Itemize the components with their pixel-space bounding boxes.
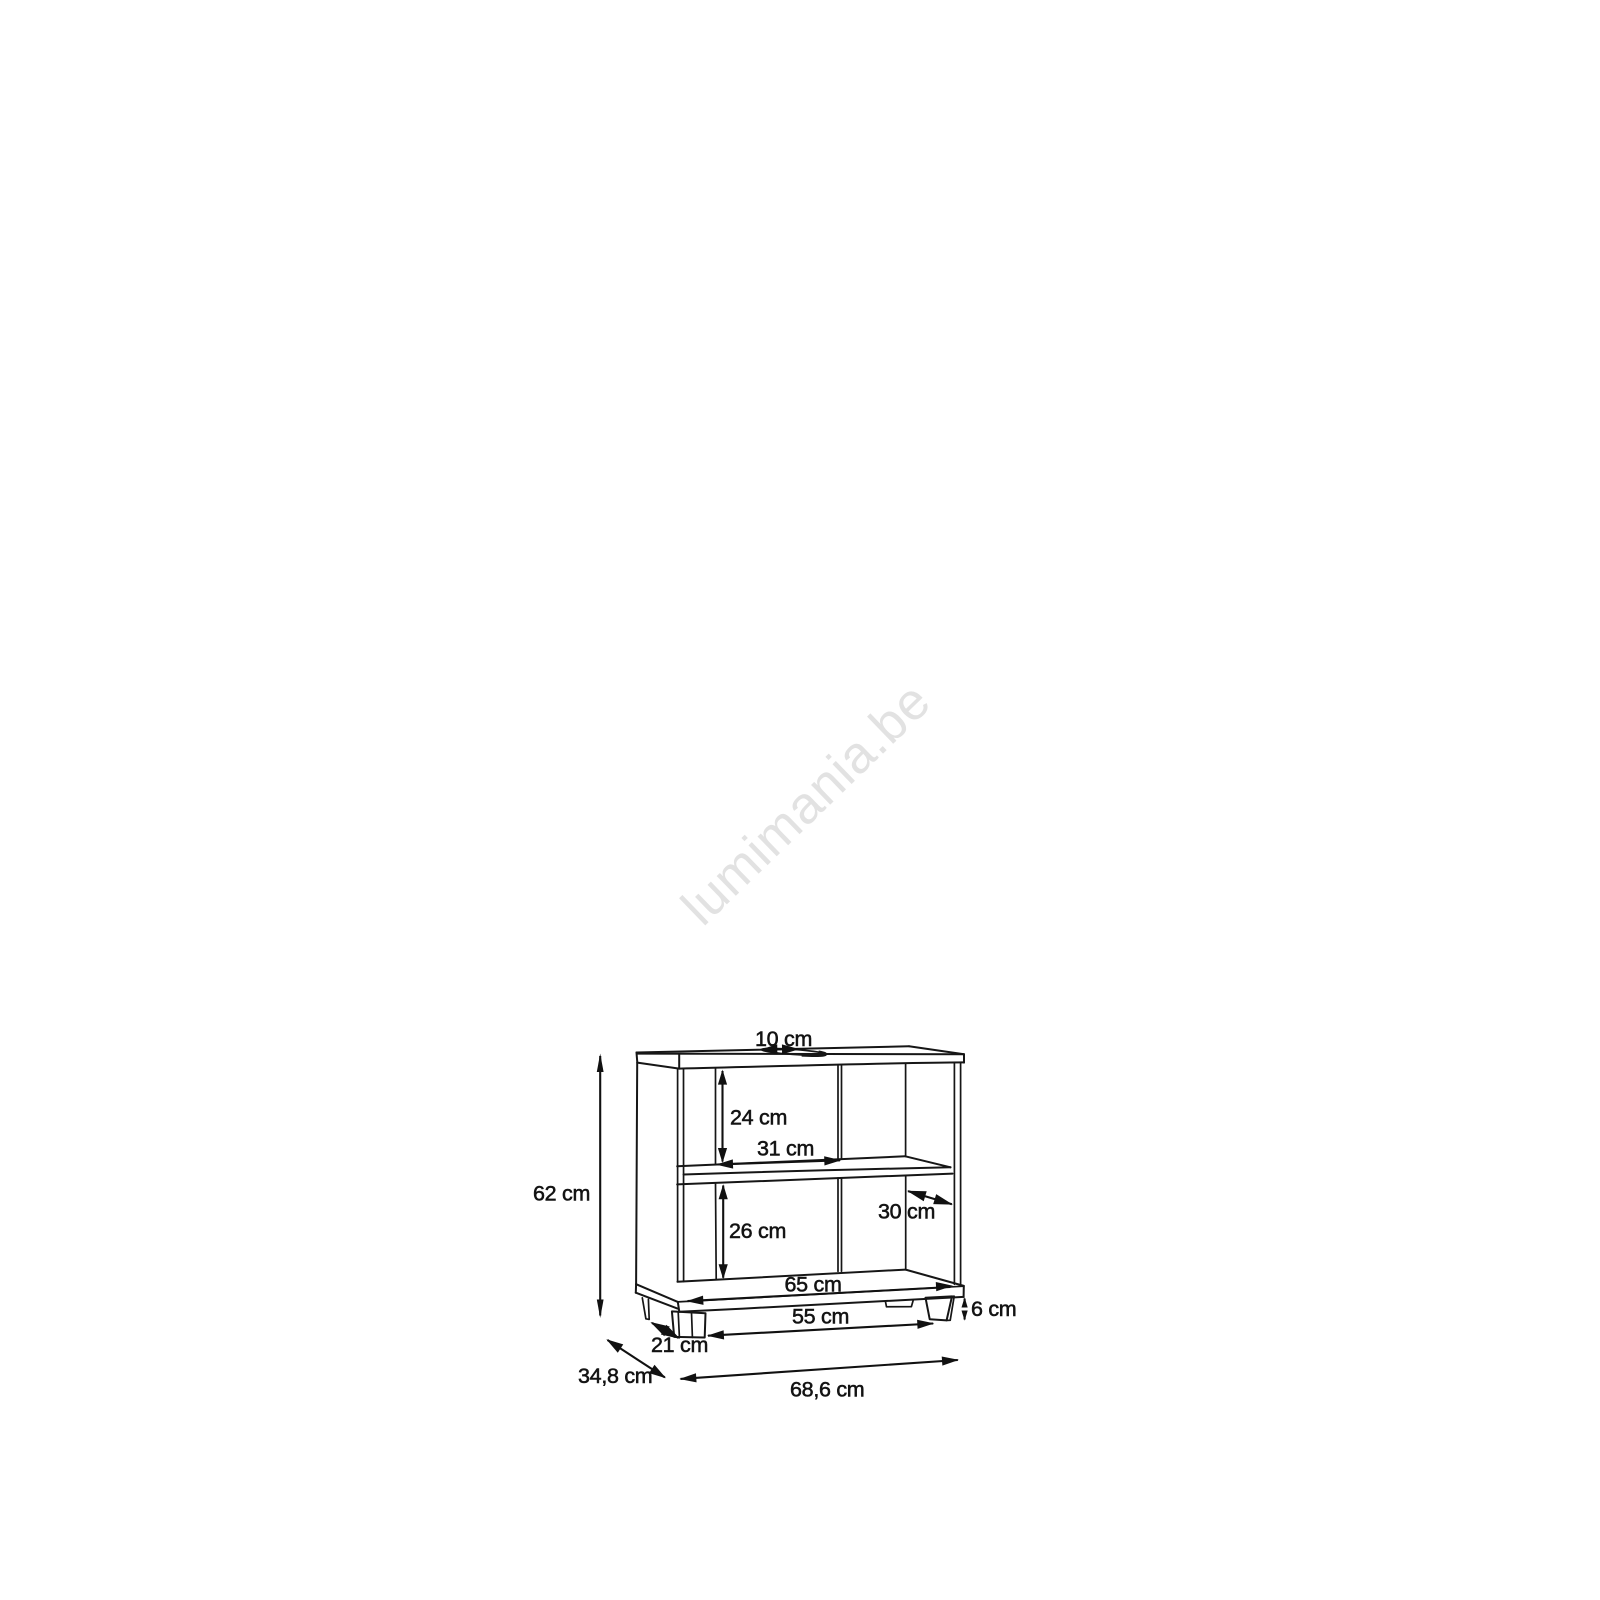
svg-text:62 cm: 62 cm — [533, 1182, 590, 1206]
svg-text:34,8 cm: 34,8 cm — [578, 1364, 652, 1388]
svg-text:21 cm: 21 cm — [651, 1333, 708, 1357]
svg-text:68,6 cm: 68,6 cm — [790, 1378, 864, 1402]
svg-text:31 cm: 31 cm — [757, 1137, 814, 1161]
svg-text:6 cm: 6 cm — [971, 1297, 1016, 1321]
svg-text:26 cm: 26 cm — [729, 1219, 786, 1243]
svg-text:24 cm: 24 cm — [730, 1105, 787, 1129]
svg-text:65 cm: 65 cm — [785, 1272, 842, 1296]
svg-text:lumimania.be: lumimania.be — [671, 671, 942, 936]
svg-text:30 cm: 30 cm — [878, 1200, 935, 1224]
svg-text:55 cm: 55 cm — [792, 1305, 849, 1329]
svg-text:10 cm: 10 cm — [755, 1027, 812, 1051]
